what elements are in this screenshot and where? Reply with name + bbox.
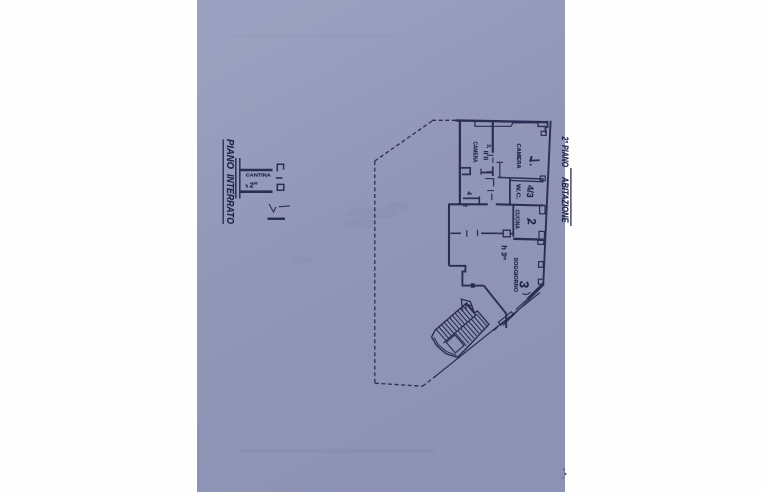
- svg-text:4/3: 4/3: [525, 185, 536, 198]
- svg-text:2: 2: [525, 218, 537, 225]
- svg-text:CANTINA: CANTINA: [246, 173, 271, 178]
- svg-text:CAMERA: CAMERA: [471, 142, 477, 163]
- svg-text:ABITAZIONE: ABITAZIONE: [560, 176, 570, 223]
- svg-text:PIANO: PIANO: [224, 139, 235, 169]
- svg-text:2° PIANO: 2° PIANO: [560, 136, 570, 167]
- svg-text:2: 2: [462, 204, 468, 207]
- svg-text:INTERRATO: INTERRATO: [224, 174, 235, 224]
- svg-text:CAMERA: CAMERA: [515, 144, 521, 169]
- svg-text:W.C.: W.C.: [515, 184, 521, 200]
- svg-text:3: 3: [516, 280, 532, 289]
- svg-text:CUCINA: CUCINA: [514, 210, 520, 230]
